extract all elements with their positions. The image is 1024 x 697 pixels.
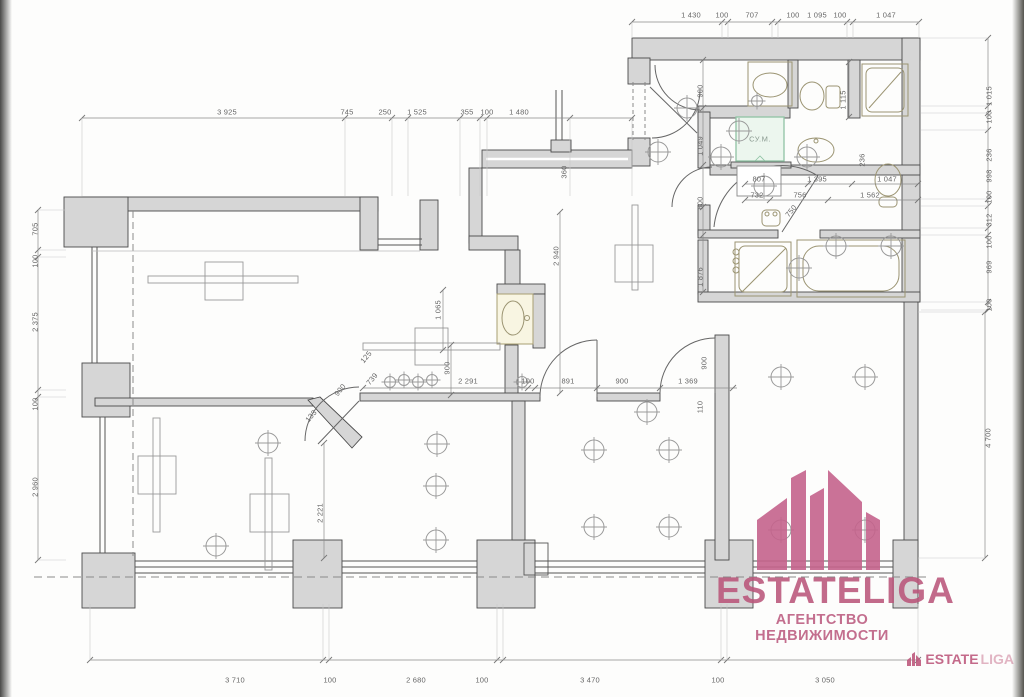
corner-brand-b: LIGA [981, 651, 1014, 667]
washbasin-counter [748, 62, 792, 106]
furniture [92, 205, 653, 575]
toilet-1-bowl [800, 82, 824, 110]
corner-watermark: ESTATELIGA [907, 651, 1014, 667]
watermark-tagline: АГЕНТСТВО НЕДВИЖИМОСТИ [712, 612, 932, 644]
shower-2 [735, 242, 791, 296]
watermark-brand: ESTATELIGA [716, 572, 928, 609]
corner-logo-icon [907, 652, 923, 666]
washbasin-1 [753, 73, 787, 97]
floor-plan: 1 4301007071001 0951001 0473 9257452501 … [0, 0, 1024, 697]
room-label-sym: СУ.М. [749, 135, 771, 144]
toilet-1-tank [826, 86, 840, 108]
bathtub [797, 240, 905, 297]
small-sink [762, 210, 780, 226]
washbasin-2 [798, 138, 834, 162]
corner-brand-a: ESTATE [925, 651, 978, 667]
toilet-2-base [879, 197, 897, 207]
watermark-logo [757, 470, 880, 570]
